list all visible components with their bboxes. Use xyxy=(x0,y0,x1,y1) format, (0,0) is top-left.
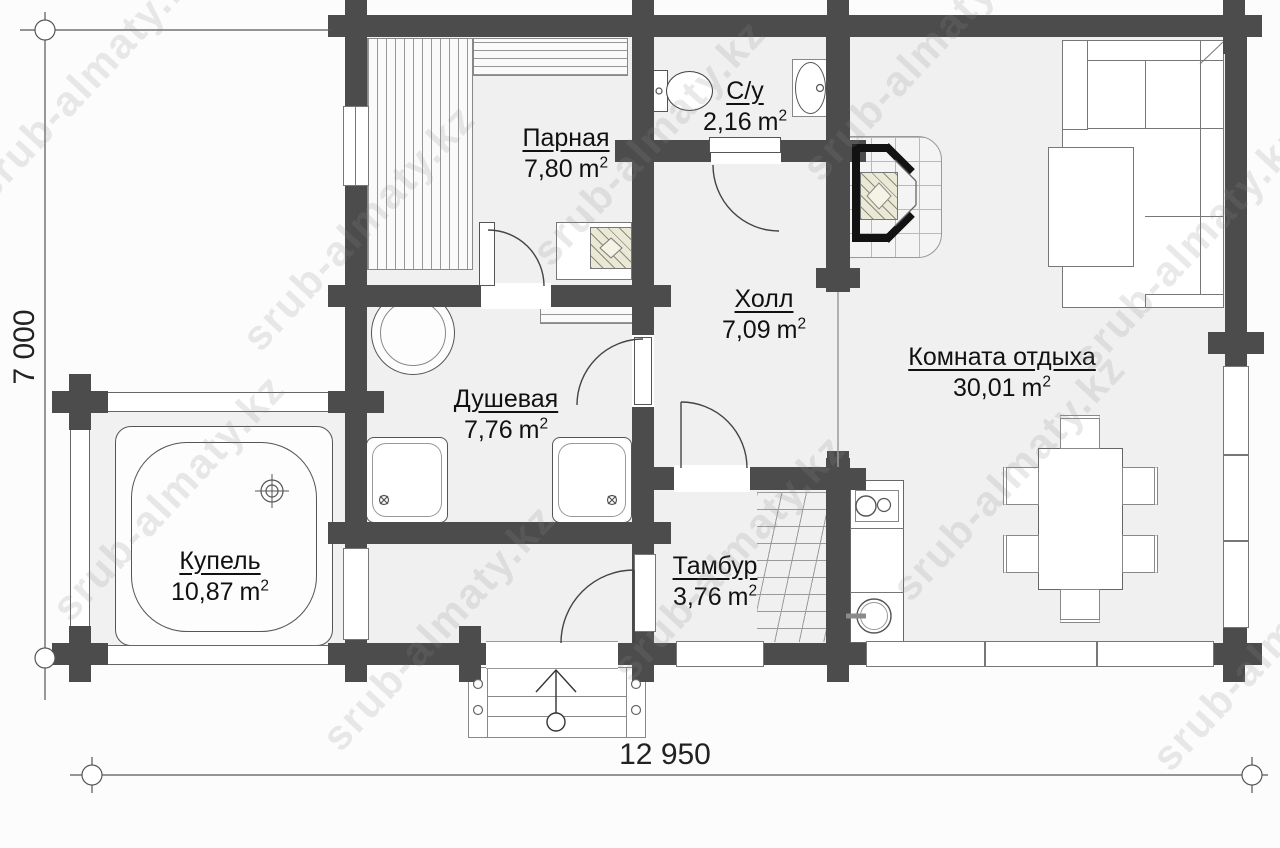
log-post xyxy=(328,285,384,307)
room-area: 2,16m2 xyxy=(680,107,810,138)
sofa-armrest-bottom xyxy=(1145,294,1224,308)
cooktop xyxy=(855,490,899,522)
log-post xyxy=(615,15,671,37)
area-value: 30,01 xyxy=(953,374,1016,402)
room-label-tambur: Тамбур 3,76m2 xyxy=(640,551,790,612)
area-value: 7,76 xyxy=(464,416,513,444)
sofa-back-line xyxy=(1200,40,1201,308)
counter-line xyxy=(850,528,904,529)
chair xyxy=(1003,467,1039,505)
log-post xyxy=(52,643,108,665)
coffee-table xyxy=(1048,147,1134,267)
door-opening-steam xyxy=(481,283,551,309)
chair xyxy=(1003,535,1039,573)
area-unit: m2 xyxy=(777,316,806,344)
door-leaf-wc xyxy=(709,137,781,153)
sauna-bench-top xyxy=(473,38,628,76)
sofa-seat-line xyxy=(1145,216,1224,217)
log-post xyxy=(328,643,384,665)
room-label-dushevaya: Душевая 7,76m2 xyxy=(406,384,606,445)
log-post xyxy=(615,522,671,544)
dimension-width-label: 12 950 xyxy=(565,738,765,772)
area-value: 10,87 xyxy=(171,578,234,606)
room-name: Комната отдыха xyxy=(908,343,1096,371)
room-area: 7,80m2 xyxy=(466,154,666,185)
room-area: 10,87m2 xyxy=(120,577,320,608)
log-post xyxy=(810,140,866,162)
room-area: 3,76m2 xyxy=(640,582,790,613)
floor-plan: Парная 7,80m2 С/у 2,16m2 Холл 7,09m2 Ком… xyxy=(0,0,1280,848)
shower-tray-right-inner xyxy=(558,443,626,517)
door-leaf-shower xyxy=(634,337,652,405)
log-post xyxy=(52,391,108,413)
dimension-height-label: 7 000 xyxy=(8,287,42,407)
wash-tub-inner xyxy=(380,300,446,366)
log-post xyxy=(810,15,866,37)
log-post xyxy=(615,285,671,307)
terrace-wall-left xyxy=(70,392,90,665)
room-area: 7,09m2 xyxy=(664,315,864,346)
room-name: С/у xyxy=(726,77,764,105)
area-unit: m2 xyxy=(758,108,787,136)
window-vestibule-bottom xyxy=(676,641,764,667)
area-unit: m2 xyxy=(728,583,757,611)
sofa-armrest-left xyxy=(1062,40,1088,130)
shower-tray-left-inner xyxy=(372,443,442,517)
porch-steps xyxy=(468,667,646,738)
area-value: 7,80 xyxy=(524,155,573,183)
chair xyxy=(1060,415,1100,449)
area-value: 2,16 xyxy=(703,108,752,136)
chair xyxy=(1060,589,1100,623)
window-mullion xyxy=(355,106,356,186)
log-post xyxy=(1208,332,1264,354)
wall-shower-bottom xyxy=(345,522,654,544)
chair xyxy=(1122,535,1158,573)
window-mullion xyxy=(984,641,986,667)
area-unit: m2 xyxy=(1022,374,1051,402)
terrace-wall-top xyxy=(70,392,345,412)
room-name: Душевая xyxy=(454,385,558,413)
log-post xyxy=(1206,15,1262,37)
window-mullion xyxy=(1096,641,1098,667)
window-lounge-right xyxy=(1223,366,1249,628)
watermark-text: srub-almaty.kz xyxy=(0,0,215,210)
room-name: Тамбур xyxy=(673,552,758,580)
dining-table xyxy=(1038,448,1123,590)
room-name: Парная xyxy=(522,124,609,152)
fireplace-core xyxy=(860,172,898,220)
room-area: 30,01m2 xyxy=(852,373,1152,404)
log-post xyxy=(810,643,866,665)
log-post xyxy=(328,15,384,37)
area-value: 7,09 xyxy=(722,316,771,344)
window-mullion xyxy=(1223,540,1249,542)
counter-line xyxy=(850,592,904,593)
area-value: 3,76 xyxy=(673,583,722,611)
porch-step-line xyxy=(488,716,626,717)
log-post xyxy=(1206,643,1262,665)
wall-top xyxy=(345,15,1245,37)
sauna-bench-vertical xyxy=(367,38,473,270)
room-label-komnata: Комната отдыха 30,01m2 xyxy=(852,342,1152,403)
window-lounge-bottom xyxy=(866,641,1214,667)
terrace-wall-bottom xyxy=(70,645,345,665)
room-area: 7,76m2 xyxy=(406,415,606,446)
chair xyxy=(1122,467,1158,505)
log-post xyxy=(328,391,384,413)
area-unit: m2 xyxy=(579,155,608,183)
window-steam-left xyxy=(343,106,369,186)
sofa-seat-line xyxy=(1088,128,1224,129)
door-opening-vestibule xyxy=(674,465,750,492)
window-passage-terrace xyxy=(343,548,369,640)
room-label-holl: Холл 7,09m2 xyxy=(664,284,864,345)
window-mullion xyxy=(1223,454,1249,456)
log-post xyxy=(810,468,866,490)
entrance-opening xyxy=(486,641,618,669)
porch-step-line xyxy=(488,696,626,697)
room-label-kupel: Купель 10,87m2 xyxy=(120,546,320,607)
room-name: Холл xyxy=(735,285,794,313)
area-unit: m2 xyxy=(519,416,548,444)
sofa-seat-line xyxy=(1145,60,1146,128)
sauna-stove xyxy=(590,227,632,269)
area-unit: m2 xyxy=(240,578,269,606)
log-post xyxy=(328,522,384,544)
room-label-parnaya: Парная 7,80m2 xyxy=(466,123,666,184)
log-post xyxy=(615,643,671,665)
room-label-su: С/у 2,16m2 xyxy=(680,76,810,137)
door-leaf-steam xyxy=(479,222,495,286)
room-name: Купель xyxy=(179,547,260,575)
